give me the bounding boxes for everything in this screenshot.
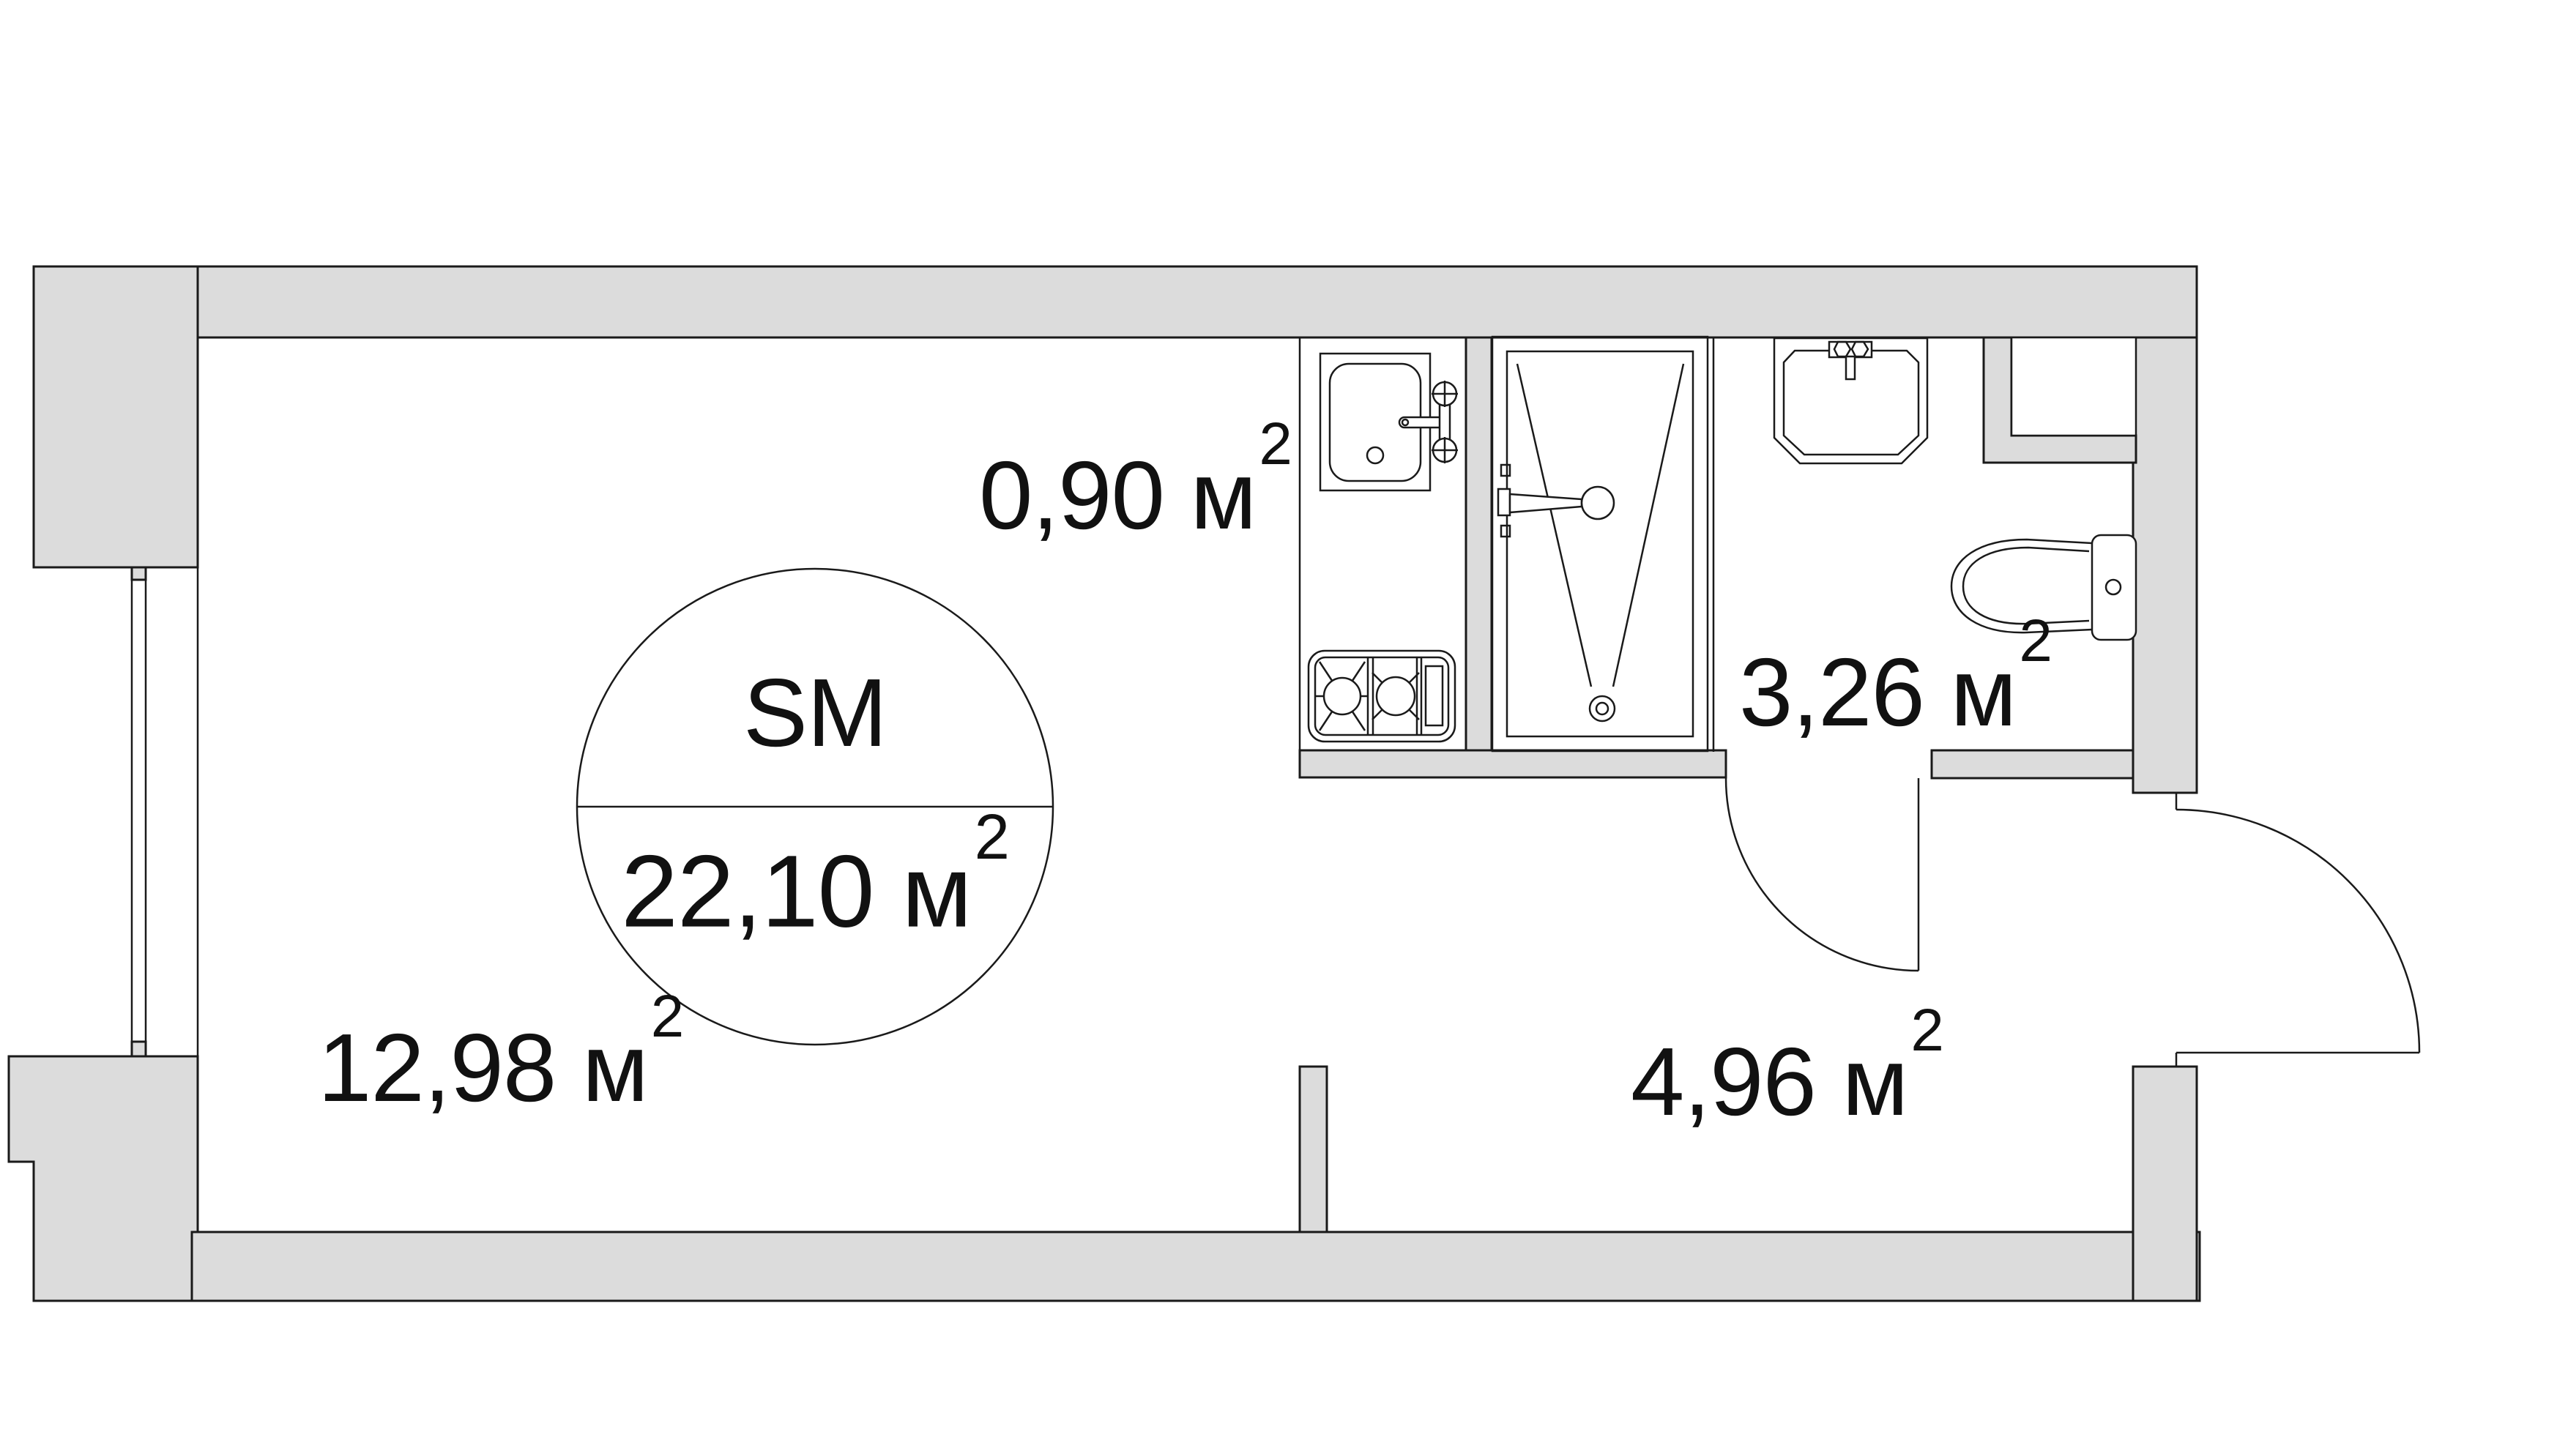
shower-slope-left xyxy=(1517,364,1591,687)
wall-right-pier xyxy=(2133,1067,2197,1301)
gas-stove xyxy=(1309,651,1455,742)
unit-type-label: SM xyxy=(632,665,998,761)
living-room-area-value: 12,98 м xyxy=(318,1014,648,1121)
wall-left-upper xyxy=(34,266,198,567)
shower-head xyxy=(1582,487,1614,519)
shower-mount-top xyxy=(1501,465,1510,476)
shower-mount-bottom xyxy=(1501,526,1510,537)
wall-hall-stub xyxy=(1300,1067,1327,1232)
stove-grill-panel xyxy=(1426,666,1443,725)
floor-plan: SM 22,10 м2 0,90 м2 3,26 м2 12,98 м2 4,9… xyxy=(0,0,2568,1456)
toilet-tank xyxy=(2092,535,2136,640)
wall-kitchen-shower-partition xyxy=(1466,337,1492,750)
wall-bathroom-bottom-right xyxy=(1932,750,2133,778)
shower-drain-inner xyxy=(1596,703,1608,714)
balcony-door-arc xyxy=(2176,810,2419,1053)
shower-arm xyxy=(1510,494,1582,512)
living-room-area-sup: 2 xyxy=(651,983,684,1050)
washbasin xyxy=(1774,338,1927,463)
wall-bottom-left-block xyxy=(9,1056,198,1301)
hallway-area-sup: 2 xyxy=(1910,997,1943,1064)
room-area-label-hallway: 4,96 м2 xyxy=(1631,1032,1943,1130)
shower-slope-right xyxy=(1613,364,1683,687)
wall-right-upper xyxy=(2133,337,2197,793)
washbasin-spout xyxy=(1846,356,1855,379)
room-area-label-living-room: 12,98 м2 xyxy=(318,1018,683,1116)
shower-tray xyxy=(1492,337,1708,751)
wall-under-kitchen-and-shower xyxy=(1300,750,1726,777)
unit-total-area-sup: 2 xyxy=(975,802,1009,873)
shower-inner xyxy=(1507,351,1693,736)
kitchen-niche-area-sup: 2 xyxy=(1259,411,1292,477)
unit-total-area-label: 22,10 м2 xyxy=(595,839,1035,943)
hallway-area-value: 4,96 м xyxy=(1631,1028,1908,1135)
room-area-label-bathroom: 3,26 м2 xyxy=(1739,643,2052,741)
shower-drain-outer xyxy=(1590,696,1615,721)
stove-burner-left xyxy=(1324,678,1361,714)
bathroom-area-value: 3,26 м xyxy=(1739,638,2016,746)
bathroom-door-swing xyxy=(1726,778,1918,971)
window-left xyxy=(132,580,146,1042)
shower-mixer xyxy=(1498,489,1510,515)
bathroom-area-sup: 2 xyxy=(2019,608,2052,674)
bathroom-door-arc xyxy=(1726,778,1918,971)
unit-type-text: SM xyxy=(743,659,887,766)
floor-plan-drawing xyxy=(0,0,2568,1456)
wall-bottom xyxy=(192,1232,2200,1301)
unit-total-area-value: 22,10 м xyxy=(621,834,972,949)
wall-top xyxy=(34,266,2197,337)
walls xyxy=(9,266,2200,1301)
kitchen-niche-area-value: 0,90 м xyxy=(979,441,1256,549)
duct-niche-opening xyxy=(2011,337,2136,436)
balcony-door-swing xyxy=(2176,793,2419,1067)
sink-drain xyxy=(1367,447,1383,463)
kitchen-sink xyxy=(1320,354,1458,490)
window-cap-bottom xyxy=(132,1042,146,1056)
room-area-label-kitchen-niche: 0,90 м2 xyxy=(979,446,1292,544)
window-cap-top xyxy=(132,567,146,580)
